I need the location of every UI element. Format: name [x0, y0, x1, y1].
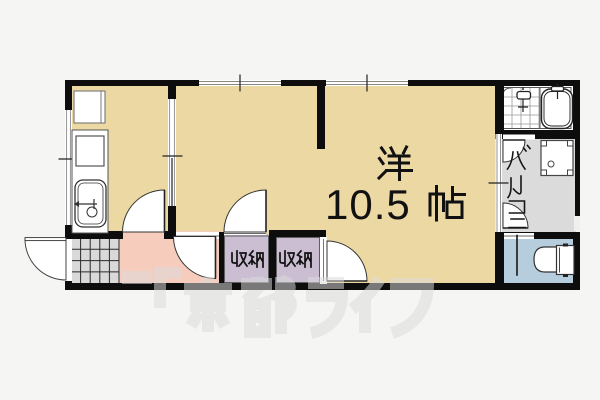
svg-text:10.5: 10.5: [325, 181, 411, 228]
